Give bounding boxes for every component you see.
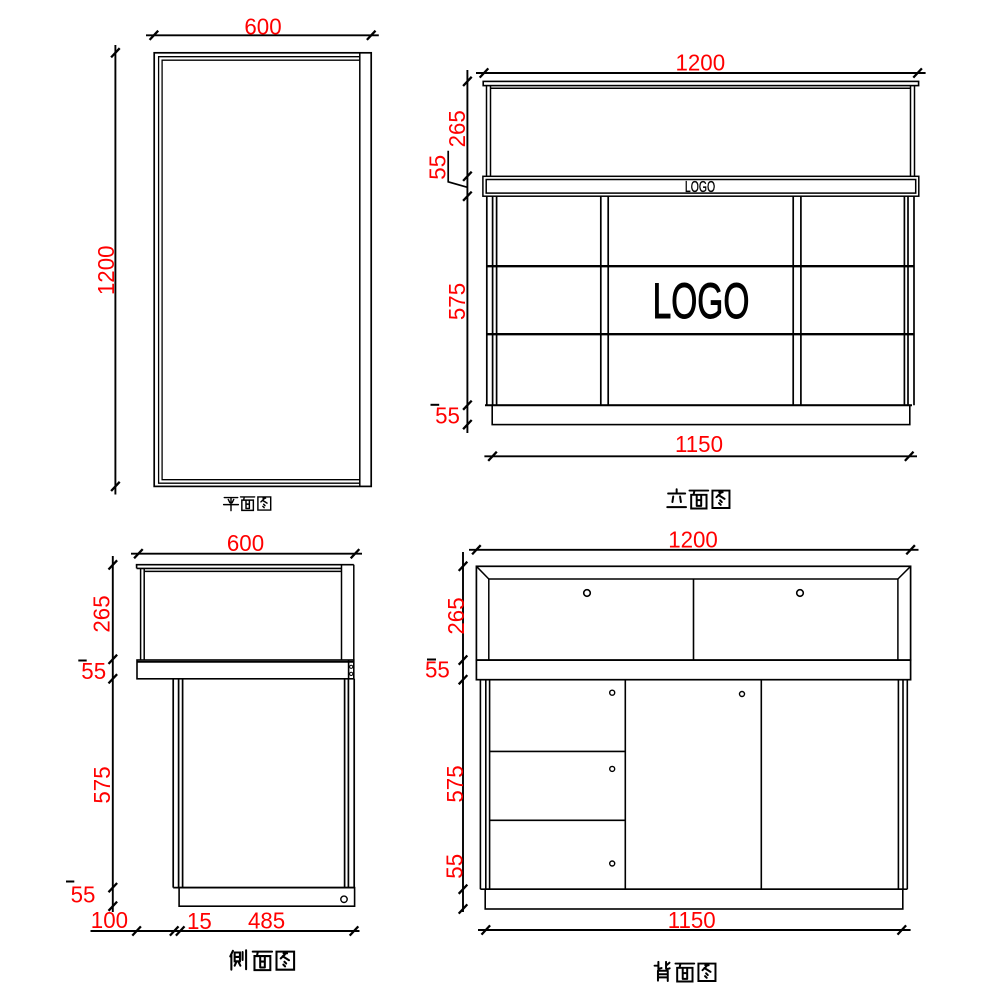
svg-text:100: 100 xyxy=(91,907,128,933)
svg-text:1150: 1150 xyxy=(668,907,716,933)
svg-text:55: 55 xyxy=(71,881,96,907)
svg-text:55: 55 xyxy=(435,402,460,428)
svg-text:55: 55 xyxy=(81,658,106,684)
svg-text:575: 575 xyxy=(444,283,470,320)
svg-text:55: 55 xyxy=(441,854,467,879)
svg-text:485: 485 xyxy=(248,907,285,933)
svg-text:1200: 1200 xyxy=(675,49,725,75)
svg-text:575: 575 xyxy=(442,765,468,802)
svg-text:1200: 1200 xyxy=(668,526,718,552)
svg-text:265: 265 xyxy=(88,595,114,632)
svg-text:LOGO: LOGO xyxy=(653,274,750,330)
svg-text:600: 600 xyxy=(227,530,264,556)
svg-text:15: 15 xyxy=(187,908,212,934)
svg-text:265: 265 xyxy=(444,110,470,147)
svg-text:1200: 1200 xyxy=(93,245,119,295)
svg-text:55: 55 xyxy=(424,155,450,180)
svg-text:265: 265 xyxy=(443,597,469,634)
svg-text:600: 600 xyxy=(244,13,281,39)
svg-text:575: 575 xyxy=(89,766,115,803)
svg-text:LOGO: LOGO xyxy=(685,178,715,196)
svg-text:1150: 1150 xyxy=(675,431,723,457)
